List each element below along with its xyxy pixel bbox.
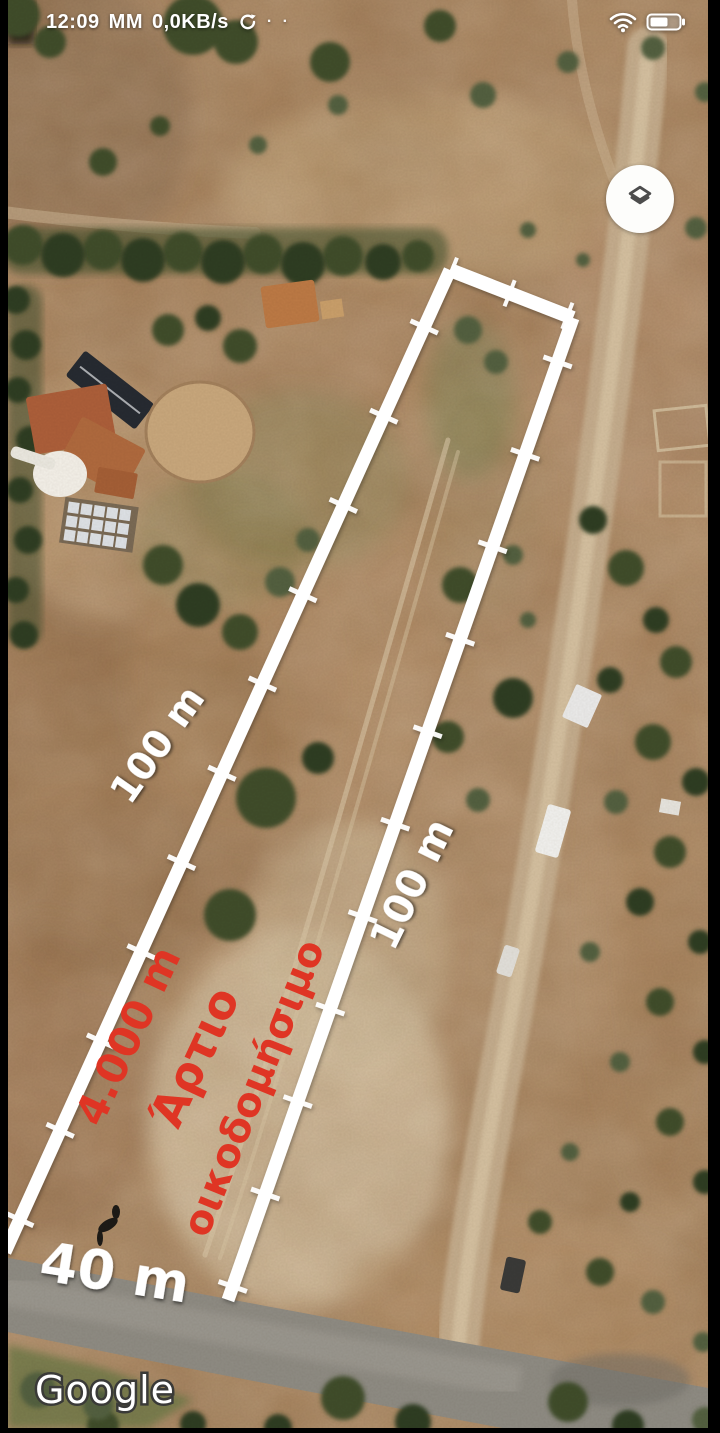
phone-screenshot: 100 m 100 m 40 m 4.000 m Άρτιο οικοδομήσ… [0,0,720,1433]
battery-icon [646,12,686,32]
wifi-icon [609,11,637,33]
map-layers-button[interactable] [606,165,674,233]
terrain [8,0,708,1428]
satellite-map-view[interactable]: 100 m 100 m 40 m 4.000 m Άρτιο οικοδομήσ… [8,0,708,1428]
data-rate: 0,0KB/s [152,11,229,34]
sync-icon [238,12,258,32]
network-type-label: MM [109,11,143,34]
clock: 12:09 [46,11,100,34]
layers-icon [621,178,659,221]
satellite-map-canvas: 100 m 100 m 40 m 4.000 m Άρτιο οικοδομήσ… [8,0,708,1428]
google-watermark: Google [35,1368,175,1412]
status-bar: 12:09 MM 0,0KB/s · · [46,7,686,37]
notification-dots: · · [267,13,291,31]
